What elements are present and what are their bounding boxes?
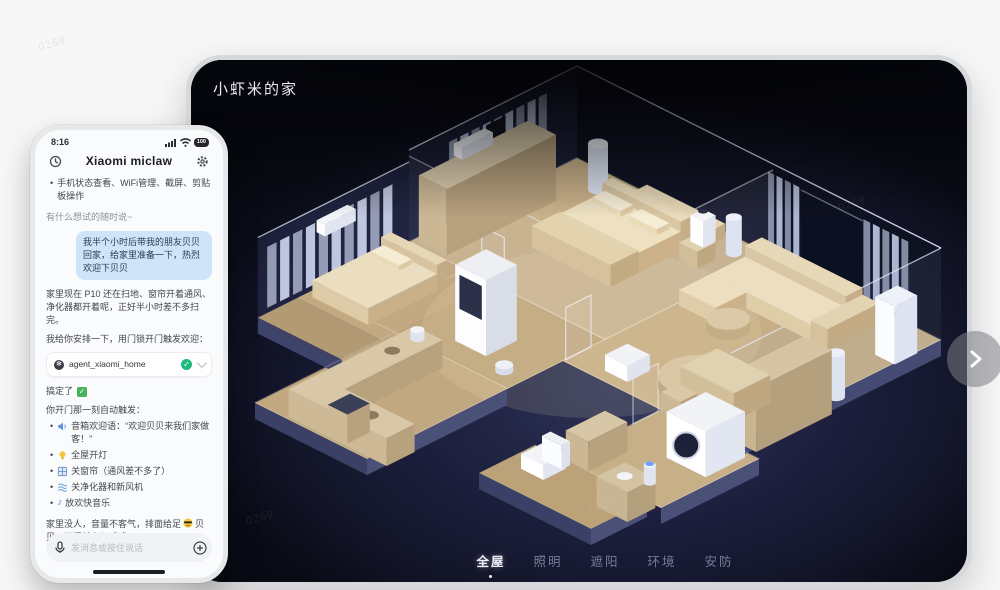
fan-icon [57, 482, 68, 493]
phone-overlay: 8:16 100 Xiaomi miclaw [30, 125, 228, 583]
home-indicator[interactable] [93, 570, 165, 574]
robot-vacuum[interactable] [495, 360, 513, 375]
purifier-living[interactable] [726, 213, 742, 257]
screen: { "home": { "title": "小虾米的家", "tabs": [ … [0, 0, 1000, 590]
watermark: 0269 [37, 34, 68, 53]
message-input[interactable] [71, 543, 188, 553]
status-time: 8:16 [51, 137, 69, 147]
capabilities-note: 手机状态查看、WiFi管理、截屏、剪贴板操作 [46, 177, 212, 203]
wifi-icon [180, 138, 191, 147]
sunglasses-emoji [183, 518, 193, 528]
trigger-item: 全屋开灯 [46, 449, 212, 462]
chevron-right-icon [965, 349, 985, 369]
camera[interactable] [690, 209, 715, 248]
rice-cooker[interactable] [410, 326, 424, 342]
agent-card[interactable]: ✻ agent_xiaomi_home ✓ [46, 352, 212, 377]
bulb-icon [57, 450, 68, 461]
success-check-icon: ✓ [181, 359, 192, 370]
plus-circle-icon[interactable] [193, 541, 207, 555]
battery-icon: 100 [194, 138, 209, 147]
mic-icon[interactable] [54, 541, 66, 554]
tab-environment[interactable]: 环境 [648, 551, 677, 570]
assistant-message-2: 我给你安排一下，用门锁开门触发欢迎： [46, 333, 212, 346]
trigger-list: 音箱欢迎语：“欢迎贝贝来我们家做客！” 全屋开灯 关窗帘（通风差不多了） 关净化… [46, 420, 212, 510]
agent-name: agent_xiaomi_home [69, 358, 176, 371]
done-row: 搞定了 ✓ [46, 385, 212, 398]
suggestion-hint: 有什么想试的随时说~ [46, 211, 212, 224]
home-app-panel: 小虾米的家 全屋 照明 遮阳 环境 安防 [186, 55, 972, 587]
user-message: 我半个小时后带我的朋友贝贝回家，给家里准备一下，热烈欢迎下贝贝 [76, 231, 212, 280]
chat-title: Xiaomi miclaw [86, 154, 173, 168]
chat-header: Xiaomi miclaw [35, 147, 223, 171]
trigger-item: 关净化器和新风机 [46, 481, 212, 494]
tab-lighting[interactable]: 照明 [533, 551, 562, 570]
floorplan-canvas[interactable] [191, 60, 967, 582]
assistant-message-1: 家里现在 P10 还在扫地、窗帘开着通风、净化器都开着呢，正好半小时差不多扫完。 [46, 288, 212, 327]
signal-icon [165, 138, 177, 147]
tab-security[interactable]: 安防 [705, 551, 734, 570]
speaker-icon [57, 421, 68, 432]
chevron-down-icon[interactable] [197, 358, 207, 368]
trigger-title: 你开门那一刻自动触发： [46, 404, 212, 417]
coffee-table-small [706, 308, 750, 340]
trigger-item: 关窗帘（通风差不多了） [46, 465, 212, 478]
trigger-item: 音箱欢迎语：“欢迎贝贝来我们家做客！” [46, 420, 212, 446]
tab-whole-house[interactable]: 全屋 [476, 551, 505, 570]
home-title: 小虾米的家 [213, 78, 298, 99]
message-input-bar [46, 533, 212, 562]
vertical-ac[interactable] [875, 286, 917, 365]
chat-body: 手机状态查看、WiFi管理、截屏、剪贴板操作 有什么想试的随时说~ 我半个小时后… [35, 171, 223, 544]
status-bar: 8:16 100 [35, 130, 223, 147]
check-emoji: ✓ [77, 387, 87, 397]
gear-icon[interactable] [195, 153, 211, 169]
trigger-item: ♪放欢快音乐 [46, 497, 212, 510]
agent-gear-icon: ✻ [54, 360, 64, 370]
sink [384, 347, 400, 355]
history-icon[interactable] [47, 153, 63, 169]
tab-shading[interactable]: 遮阳 [590, 551, 619, 570]
music-icon: ♪ [57, 497, 62, 508]
room-filter-tabs: 全屋 照明 遮阳 环境 安防 [217, 551, 972, 570]
next-page-button[interactable] [947, 331, 1000, 387]
window-icon [57, 466, 68, 477]
